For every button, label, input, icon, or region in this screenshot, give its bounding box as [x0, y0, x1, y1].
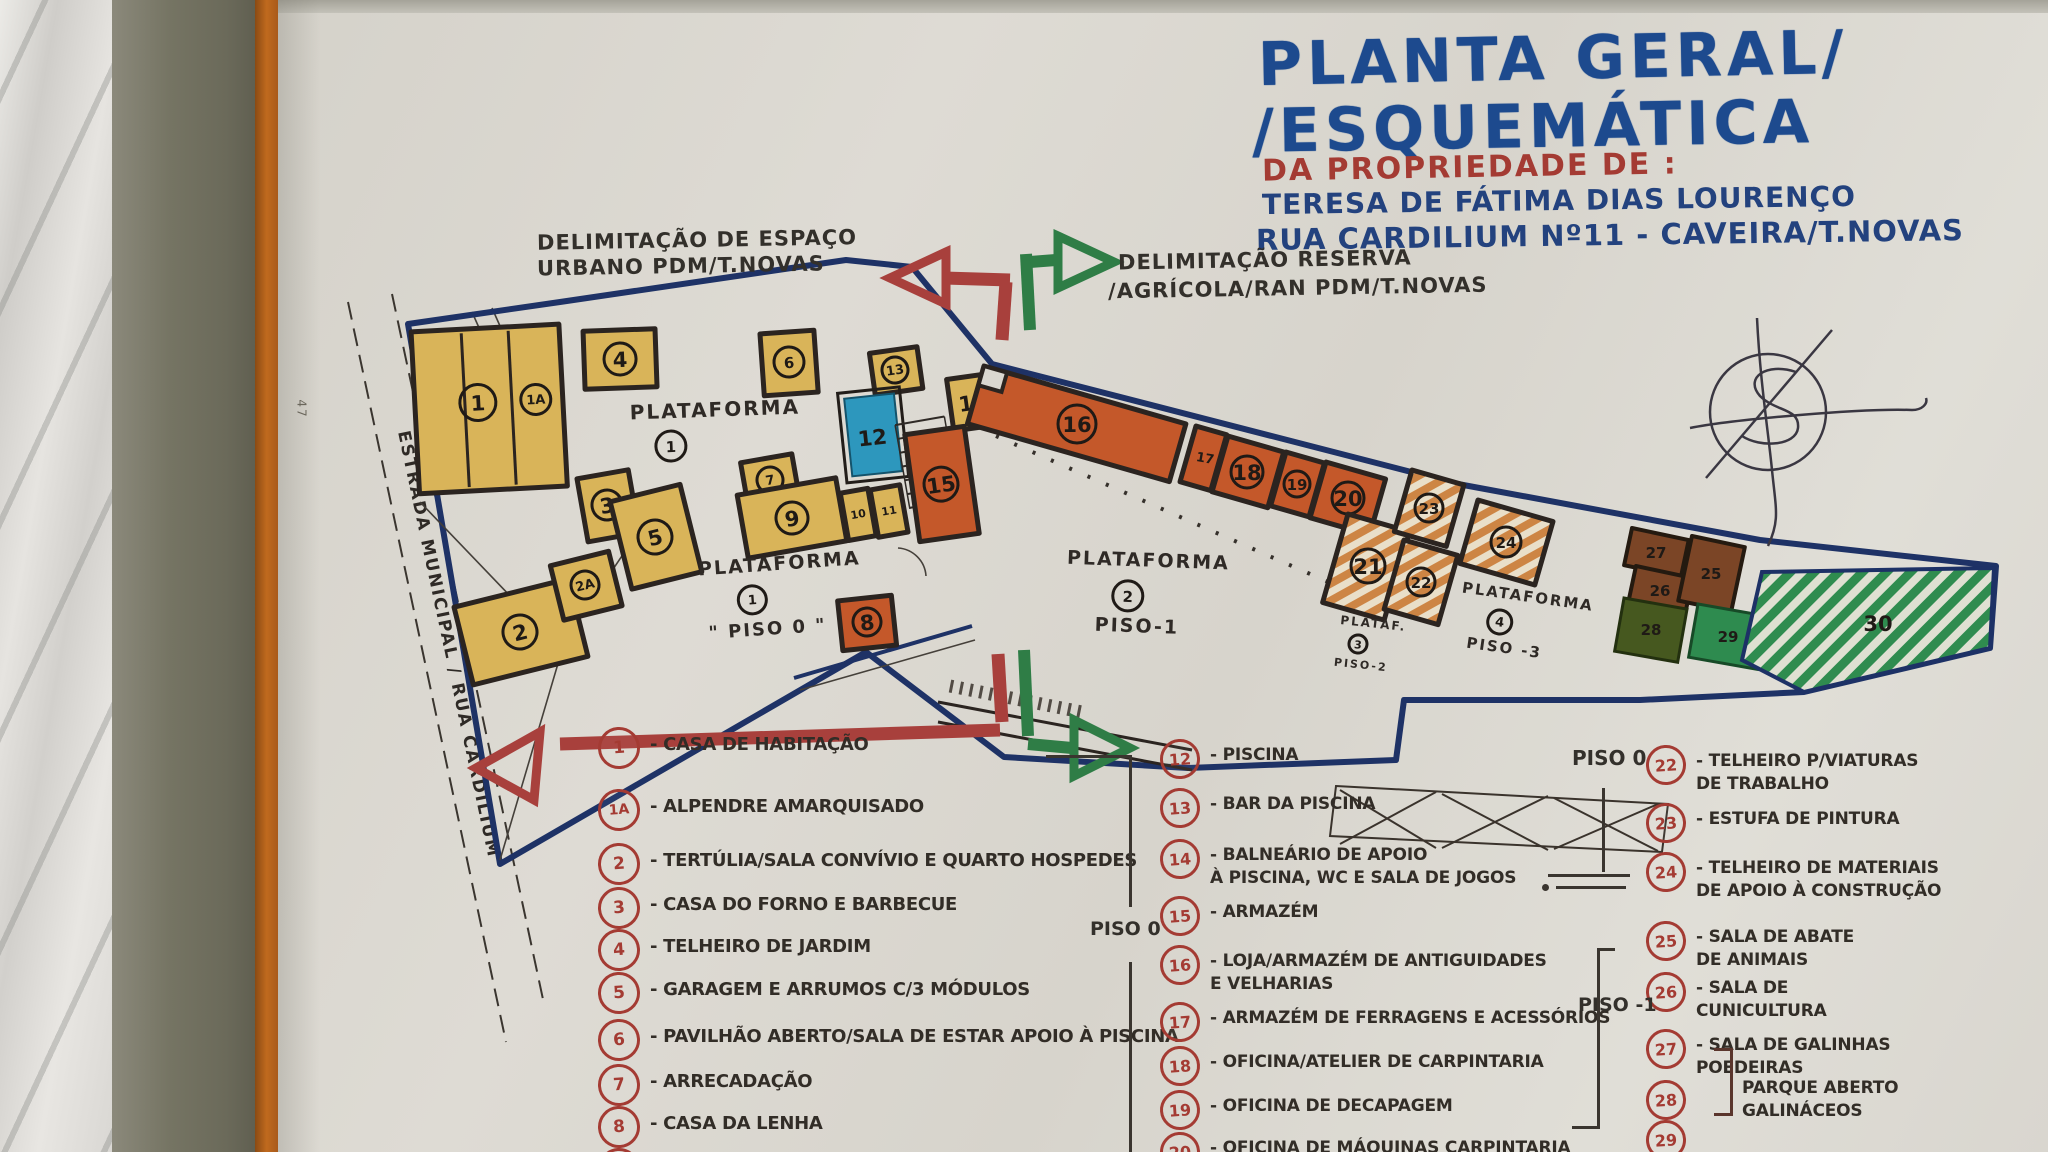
- legend-item: 16 - LOJA/ARMAZÉM DE ANTIGUIDADESE VELHA…: [1160, 945, 1610, 996]
- svg-text:29: 29: [1718, 628, 1739, 646]
- legend-item: 19 - OFICINA DE DECAPAGEM: [1160, 1090, 1610, 1130]
- pool-12: 12: [838, 387, 909, 483]
- building-4: 4: [583, 329, 657, 389]
- building-10-11: 10 11: [840, 483, 908, 543]
- legend-item: 29: [1646, 1120, 1941, 1152]
- svg-text:17: 17: [1195, 450, 1215, 468]
- legend-item: 17 - ARMAZÉM DE FERRAGENS E ACESSÓRIOS: [1160, 1002, 1610, 1042]
- legend-number-badge: 27: [1645, 1028, 1688, 1071]
- bracket-line: [1597, 948, 1615, 951]
- legend-item: 5 - GARAGEM E ARRUMOS C/3 MÓDULOS: [598, 972, 1179, 1014]
- svg-text:1A: 1A: [526, 393, 546, 409]
- svg-text:PLATAFORMA: PLATAFORMA: [697, 547, 861, 580]
- svg-text:1: 1: [470, 391, 486, 416]
- legend-number-badge: 7: [597, 1063, 642, 1108]
- legend-number-badge: 4: [597, 928, 642, 973]
- svg-text:4: 4: [1494, 615, 1505, 631]
- legend-item: 7 - ARRECADAÇÃO: [598, 1064, 1179, 1106]
- legend-number-badge: 3: [597, 886, 642, 931]
- top-green-arrow: [1026, 236, 1114, 330]
- legend-number-badge: 29: [1645, 1119, 1688, 1152]
- legend-number-badge: 6: [597, 1018, 642, 1063]
- svg-text:2: 2: [1122, 588, 1133, 606]
- legend-item: 2 - TERTÚLIA/SALA CONVÍVIO E QUARTO HOSP…: [598, 843, 1179, 885]
- legend-item: 23 - ESTUFA DE PINTURA: [1646, 803, 1941, 843]
- legend-number-badge: 1: [597, 726, 642, 771]
- piso0-label-col2: PISO 0: [1090, 918, 1161, 940]
- legend-item: 1A - ALPENDRE AMARQUISADO: [598, 789, 1179, 831]
- legend-item: 1 - CASA DE HABITAÇÃO: [598, 727, 1179, 769]
- legend-item: 24 - TELHEIRO DE MATERIAISDE APOIO À CON…: [1646, 852, 1941, 903]
- legend-number-badge: 9: [597, 1147, 642, 1152]
- svg-text:22: 22: [1411, 574, 1432, 592]
- bracket-line: [1597, 950, 1600, 1128]
- svg-text:PLATAFORMA: PLATAFORMA: [1067, 547, 1230, 575]
- legend-item: 18 - OFICINA/ATELIER DE CARPINTARIA: [1160, 1046, 1610, 1086]
- svg-text:16: 16: [1062, 413, 1091, 437]
- building-8: 8: [838, 595, 897, 650]
- legend-number-badge: 13: [1159, 787, 1202, 830]
- legend-number-badge: 28: [1645, 1079, 1688, 1122]
- legend-number-badge: 18: [1159, 1045, 1202, 1088]
- legend-number-badge: 22: [1645, 744, 1688, 787]
- svg-text:13: 13: [885, 362, 905, 379]
- bracket-line: [1129, 755, 1132, 907]
- building-1-1a: 1 1A: [411, 324, 567, 494]
- legend-number-badge: 16: [1159, 944, 1202, 987]
- parque-bracket: [1714, 1048, 1733, 1116]
- svg-text:1: 1: [747, 593, 757, 609]
- legend-item: 12 - PISCINA: [1160, 739, 1610, 779]
- ran-delimitation-label-l1: DELIMITAÇÃO RESERVA: [1118, 245, 1412, 274]
- building-2a: 2A: [550, 551, 622, 620]
- survey-mark: [1548, 874, 1630, 877]
- building-5: 5: [610, 484, 702, 589]
- svg-text:PLATAF.: PLATAF.: [1340, 613, 1407, 634]
- top-red-arrow: [890, 252, 1010, 340]
- svg-text:21: 21: [1353, 555, 1382, 579]
- legend-number-badge: 15: [1159, 895, 1202, 938]
- legend-number-badge: 8: [597, 1105, 642, 1150]
- svg-text:30: 30: [1863, 612, 1892, 636]
- legend-item: 6 - PAVILHÃO ABERTO/SALA DE ESTAR APOIO …: [598, 1019, 1179, 1061]
- legend-item: 25 - SALA DE ABATEDE ANIMAIS: [1646, 921, 1941, 972]
- urban-delimitation-label-l2: URBANO PDM/T.NOVAS: [537, 251, 825, 280]
- svg-text:10: 10: [850, 507, 868, 523]
- platform-2-label: PLATAFORMA 2 PISO-1: [1064, 547, 1230, 641]
- svg-text:20: 20: [1333, 487, 1362, 511]
- legend-item: 13 - BAR DA PISCINA: [1160, 788, 1610, 828]
- svg-text:PLATAFORMA: PLATAFORMA: [629, 395, 800, 425]
- piso-minus1-label: PISO -1: [1578, 994, 1657, 1016]
- bracket-line: [1572, 1126, 1600, 1129]
- svg-text:8: 8: [859, 610, 876, 635]
- building-9: 9: [737, 478, 847, 558]
- legend-number-badge: 12: [1159, 738, 1202, 781]
- building-15: 15: [905, 426, 979, 541]
- legend-column-2: 12 - PISCINA 13 - BAR DA PISCINA 14 - BA…: [1160, 739, 1610, 1152]
- svg-text:11: 11: [880, 503, 897, 518]
- platform-3-label: PLATAF. 3 PISO-2: [1333, 613, 1407, 676]
- svg-text:1: 1: [665, 438, 676, 456]
- svg-text:24: 24: [1496, 534, 1517, 552]
- legend-item: 15 - ARMAZÉM: [1160, 896, 1610, 936]
- legend-item: 8 - CASA DA LENHA: [598, 1106, 1179, 1148]
- svg-text:18: 18: [1232, 461, 1261, 485]
- svg-text:PISO-2: PISO-2: [1333, 656, 1388, 675]
- legend-number-badge: 24: [1645, 851, 1688, 894]
- legend-item: 26 - SALA DECUNICULTURA: [1646, 972, 1941, 1023]
- platform-1-label: PLATAFORMA 1: [629, 395, 801, 463]
- svg-text:3: 3: [1353, 638, 1362, 652]
- legend-number-badge: 17: [1159, 1001, 1202, 1044]
- legend-number-badge: 23: [1645, 802, 1688, 845]
- survey-mark: [1556, 886, 1626, 889]
- svg-text:12: 12: [857, 425, 889, 452]
- bracket-line: [1602, 788, 1605, 872]
- svg-text:6: 6: [783, 354, 795, 373]
- compass-rose: [1690, 318, 1926, 546]
- legend-number-badge: 14: [1159, 838, 1202, 881]
- svg-text:4: 4: [612, 348, 627, 372]
- legend-item: 22 - TELHEIRO P/VIATURASDE TRABALHO: [1646, 745, 1941, 796]
- svg-text:PISO -3: PISO -3: [1465, 634, 1543, 662]
- legend-number-badge: 25: [1645, 920, 1688, 963]
- svg-text:15: 15: [925, 471, 957, 499]
- piso0-label-col3: PISO 0: [1572, 746, 1646, 770]
- legend-number-badge: 2: [597, 842, 642, 887]
- parque-aberto-label: PARQUE ABERTOGALINÁCEOS: [1742, 1072, 1898, 1123]
- svg-text:23: 23: [1419, 500, 1440, 518]
- legend-number-badge: 5: [597, 971, 642, 1016]
- platform-4-label: PLATAFORMA 4 PISO -3: [1453, 579, 1594, 669]
- legend-item: 20 - OFICINA DE MÁQUINAS CARPINTARIA: [1160, 1132, 1610, 1152]
- svg-text:25: 25: [1701, 565, 1722, 583]
- bracket-line: [1129, 962, 1132, 1152]
- svg-text:26: 26: [1650, 582, 1671, 600]
- survey-dot: [1542, 884, 1549, 891]
- svg-text:27: 27: [1646, 544, 1667, 562]
- legend-item: 14 - BALNEÁRIO DE APOIOÀ PISCINA, WC E S…: [1160, 839, 1610, 890]
- legend-number-badge: 19: [1159, 1089, 1202, 1132]
- legend-item: 9 - TELHEIRO/ABRIGO VIATURAS: [598, 1148, 1179, 1152]
- photo-of-site-plan: 47 ESTRADA MUNICIPAL / RUA CARDILIUM: [0, 0, 2048, 1152]
- legend-number-badge: 20: [1159, 1131, 1202, 1152]
- bracket-line: [1046, 755, 1132, 758]
- svg-text:PISO-1: PISO-1: [1094, 614, 1179, 639]
- svg-text:19: 19: [1287, 476, 1308, 494]
- building-6: 6: [760, 330, 818, 396]
- svg-text:" PISO 0 ": " PISO 0 ": [708, 615, 827, 644]
- legend-number-badge: 1A: [597, 788, 642, 833]
- svg-text:28: 28: [1641, 621, 1662, 639]
